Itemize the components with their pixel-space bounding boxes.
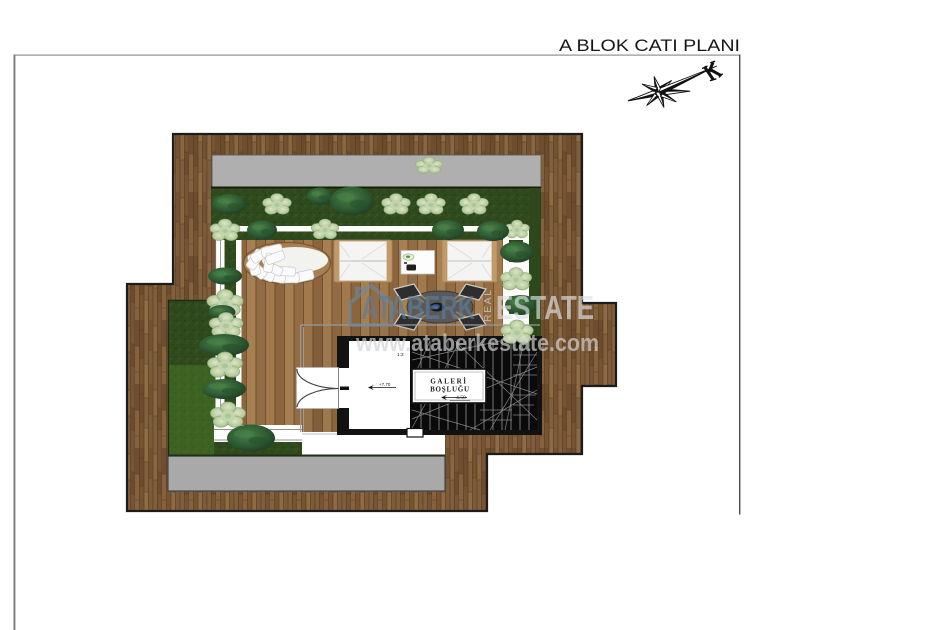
svg-text:BOŞLUĞU: BOŞLUĞU — [430, 386, 470, 394]
svg-text:ESTATE: ESTATE — [496, 289, 594, 326]
svg-text:ATABERK: ATABERK — [361, 289, 475, 326]
svg-text:REAL: REAL — [482, 289, 494, 322]
svg-text:www.ataberkestate.com: www.ataberkestate.com — [355, 330, 599, 357]
svg-text:A BLOK CATI PLANI: A BLOK CATI PLANI — [559, 37, 740, 55]
svg-text:+7.70: +7.70 — [379, 382, 391, 387]
svg-text:GALERİ: GALERİ — [430, 378, 467, 386]
